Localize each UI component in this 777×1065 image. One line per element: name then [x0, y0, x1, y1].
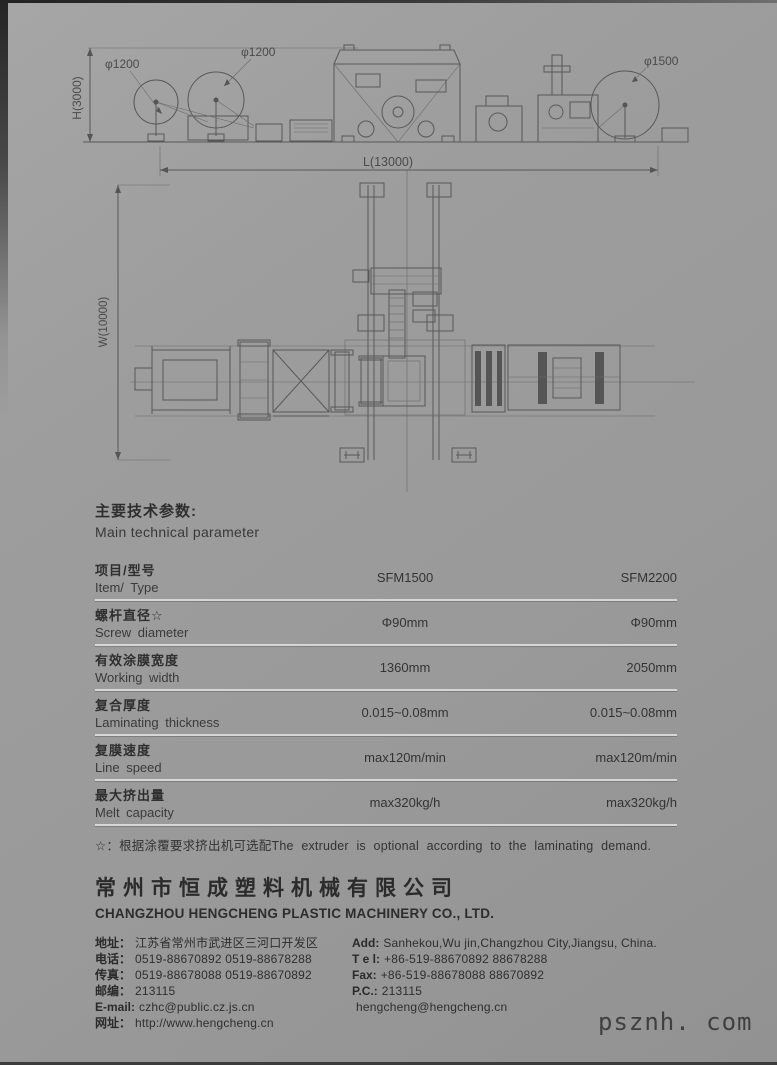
row-label-zh: 最大挤出量 — [95, 785, 325, 804]
scan-edge-left — [0, 0, 8, 420]
row-label-en: Line speed — [95, 760, 325, 775]
plan-view-drawing: W(10000) — [95, 170, 725, 500]
company-name-en: CHANGZHOU HENGCHENG PLASTIC MACHINERY CO… — [95, 906, 715, 921]
contact-label: 电话： — [95, 951, 131, 967]
contact-value: 江苏省常州市武进区三河口开发区 — [135, 935, 318, 951]
contact-label: 邮编： — [95, 983, 131, 999]
column-header-sfm1500: SFM1500 — [325, 570, 485, 585]
contact-website: 网址： http://www.hengcheng.cn — [95, 1015, 352, 1031]
table-row: 有效涂膜宽度 Working width 1360mm 2050mm — [95, 646, 677, 691]
contact-value: http://www.hengcheng.cn — [135, 1015, 274, 1031]
column-header-sfm2200: SFM2200 — [485, 570, 677, 585]
row-label-en: Screw diameter — [95, 625, 325, 640]
contact-label: 地址： — [95, 935, 131, 951]
coater-stand-plan — [472, 345, 505, 412]
contact-label: 传真： — [95, 967, 131, 983]
contact-value: czhc@public.cz.js.cn — [139, 999, 255, 1015]
row-value-sfm1500: 0.015~0.08mm — [325, 705, 485, 720]
unwind-reels — [134, 72, 254, 141]
scan-edge-top — [0, 0, 777, 3]
roller-stand-plan — [238, 340, 270, 420]
side-elevation-drawing: H(3000) φ1200 φ1200 — [58, 36, 718, 186]
row-value-sfm2200: Φ90mm — [485, 615, 677, 630]
unwind-station-plan — [135, 346, 230, 414]
contact-address-cn: 地址： 江苏省常州市武进区三河口开发区 — [95, 935, 352, 951]
row-value-sfm2200: max120m/min — [485, 750, 677, 765]
row-value-sfm2200: 2050mm — [485, 660, 677, 675]
contact-label: T e l: — [352, 951, 380, 967]
contact-value: Sanhekou,Wu jin,Changzhou City,Jiangsu, … — [383, 935, 657, 951]
company-name-zh: 常州市恒成塑料机械有限公司 — [95, 872, 715, 902]
contact-label: 网址： — [95, 1015, 131, 1031]
table-row: 复膜速度 Line speed max120m/min max120m/min — [95, 736, 677, 781]
table-row: 螺杆直径☆ Screw diameter Φ90mm Φ90mm — [95, 601, 677, 646]
svg-text:φ1200: φ1200 — [241, 45, 276, 59]
row-value-sfm2200: 0.015~0.08mm — [485, 705, 677, 720]
contact-postcode-en: P.C.: 213115 — [352, 983, 697, 999]
contact-label: P.C.: — [352, 983, 378, 999]
contact-value: +86-519-88678088 88670892 — [381, 967, 544, 983]
params-title-zh: 主要技术参数: — [95, 500, 677, 521]
contact-fax-en: Fax: +86-519-88678088 88670892 — [352, 967, 697, 983]
row-label-zh: 螺杆直径☆ — [95, 605, 325, 624]
catalog-page: H(3000) φ1200 φ1200 — [0, 0, 777, 1065]
technical-parameters-section: 主要技术参数: Main technical parameter 项目/型号 I… — [95, 500, 677, 854]
row-label-zh: 复膜速度 — [95, 740, 325, 759]
contact-postcode-cn: 邮编： 213115 — [95, 983, 352, 999]
table-row: 复合厚度 Laminating thickness 0.015~0.08mm 0… — [95, 691, 677, 736]
auxiliary-unit — [476, 96, 522, 142]
contact-value: +86-519-88670892 88678288 — [384, 951, 547, 967]
row-value-sfm1500: 1360mm — [325, 660, 485, 675]
table-footnote: ☆：根据涂覆要求挤出机可选配The extruder is optional a… — [95, 835, 677, 854]
row-value-sfm1500: Φ90mm — [325, 615, 485, 630]
contact-value: 0519-88670892 0519-88678288 — [135, 951, 312, 967]
header-label-zh: 项目/型号 — [95, 560, 325, 579]
dim-reel-mid: φ1200 — [224, 45, 276, 86]
row-value-sfm2200: max320kg/h — [485, 795, 677, 810]
row-value-sfm1500: max320kg/h — [325, 795, 485, 810]
infeed-units — [256, 120, 332, 141]
coater-tower — [538, 55, 598, 142]
dim-length-label: L(13000) — [363, 155, 413, 169]
width-dimension: W(10000) — [98, 185, 170, 460]
contact-label: Fax: — [352, 967, 377, 983]
contact-label: Add: — [352, 935, 379, 951]
gantry-column — [345, 183, 465, 460]
contact-fax-cn: 传真： 0519-88678088 0519-88670892 — [95, 967, 352, 983]
winder-station-plan — [508, 345, 620, 410]
winder-reel — [591, 71, 688, 142]
contact-phone-cn: 电话： 0519-88670892 0519-88678288 — [95, 951, 352, 967]
dim-width-label: W(10000) — [98, 297, 110, 348]
contact-tel-en: T e l: +86-519-88670892 88678288 — [352, 951, 697, 967]
params-title-en: Main technical parameter — [95, 524, 677, 540]
svg-text:φ1200: φ1200 — [105, 57, 140, 71]
row-label-en: Working width — [95, 670, 325, 685]
contact-address-en: Add: Sanhekou,Wu jin,Changzhou City,Jian… — [352, 935, 697, 951]
cross-brace-frame-plan — [273, 350, 329, 416]
contact-value: hengcheng@hengcheng.cn — [356, 999, 507, 1015]
row-value-sfm1500: max120m/min — [325, 750, 485, 765]
contact-value: 213115 — [135, 983, 175, 999]
section-mark-right — [452, 448, 476, 462]
dim-reel-right: φ1500 — [632, 54, 679, 82]
laminator-main-unit — [334, 45, 460, 142]
table-header-row: 项目/型号 Item/ Type SFM1500 SFM2200 — [95, 556, 677, 601]
parameters-table: 项目/型号 Item/ Type SFM1500 SFM2200 螺杆直径☆ S… — [95, 556, 677, 826]
row-label-zh: 有效涂膜宽度 — [95, 650, 325, 669]
row-label-en: Melt capacity — [95, 805, 325, 820]
row-label-en: Laminating thickness — [95, 715, 325, 730]
table-row: 最大挤出量 Melt capacity max320kg/h max320kg/… — [95, 781, 677, 826]
svg-text:φ1500: φ1500 — [644, 54, 679, 68]
header-label-en: Item/ Type — [95, 580, 325, 595]
contact-value: 0519-88678088 0519-88670892 — [135, 967, 312, 983]
contact-label: E-mail: — [95, 999, 135, 1015]
watermark: psznh. com — [598, 1008, 773, 1036]
contact-column-chinese: 地址： 江苏省常州市武进区三河口开发区 电话： 0519-88670892 05… — [95, 935, 352, 1031]
contact-email: E-mail: czhc@public.cz.js.cn — [95, 999, 352, 1015]
section-mark-left — [340, 448, 364, 462]
contact-value: 213115 — [382, 983, 422, 999]
row-label-zh: 复合厚度 — [95, 695, 325, 714]
guide-roller-plan — [331, 350, 353, 412]
dim-height-label: H(3000) — [70, 76, 84, 119]
dim-reel-left: φ1200 — [105, 57, 162, 114]
